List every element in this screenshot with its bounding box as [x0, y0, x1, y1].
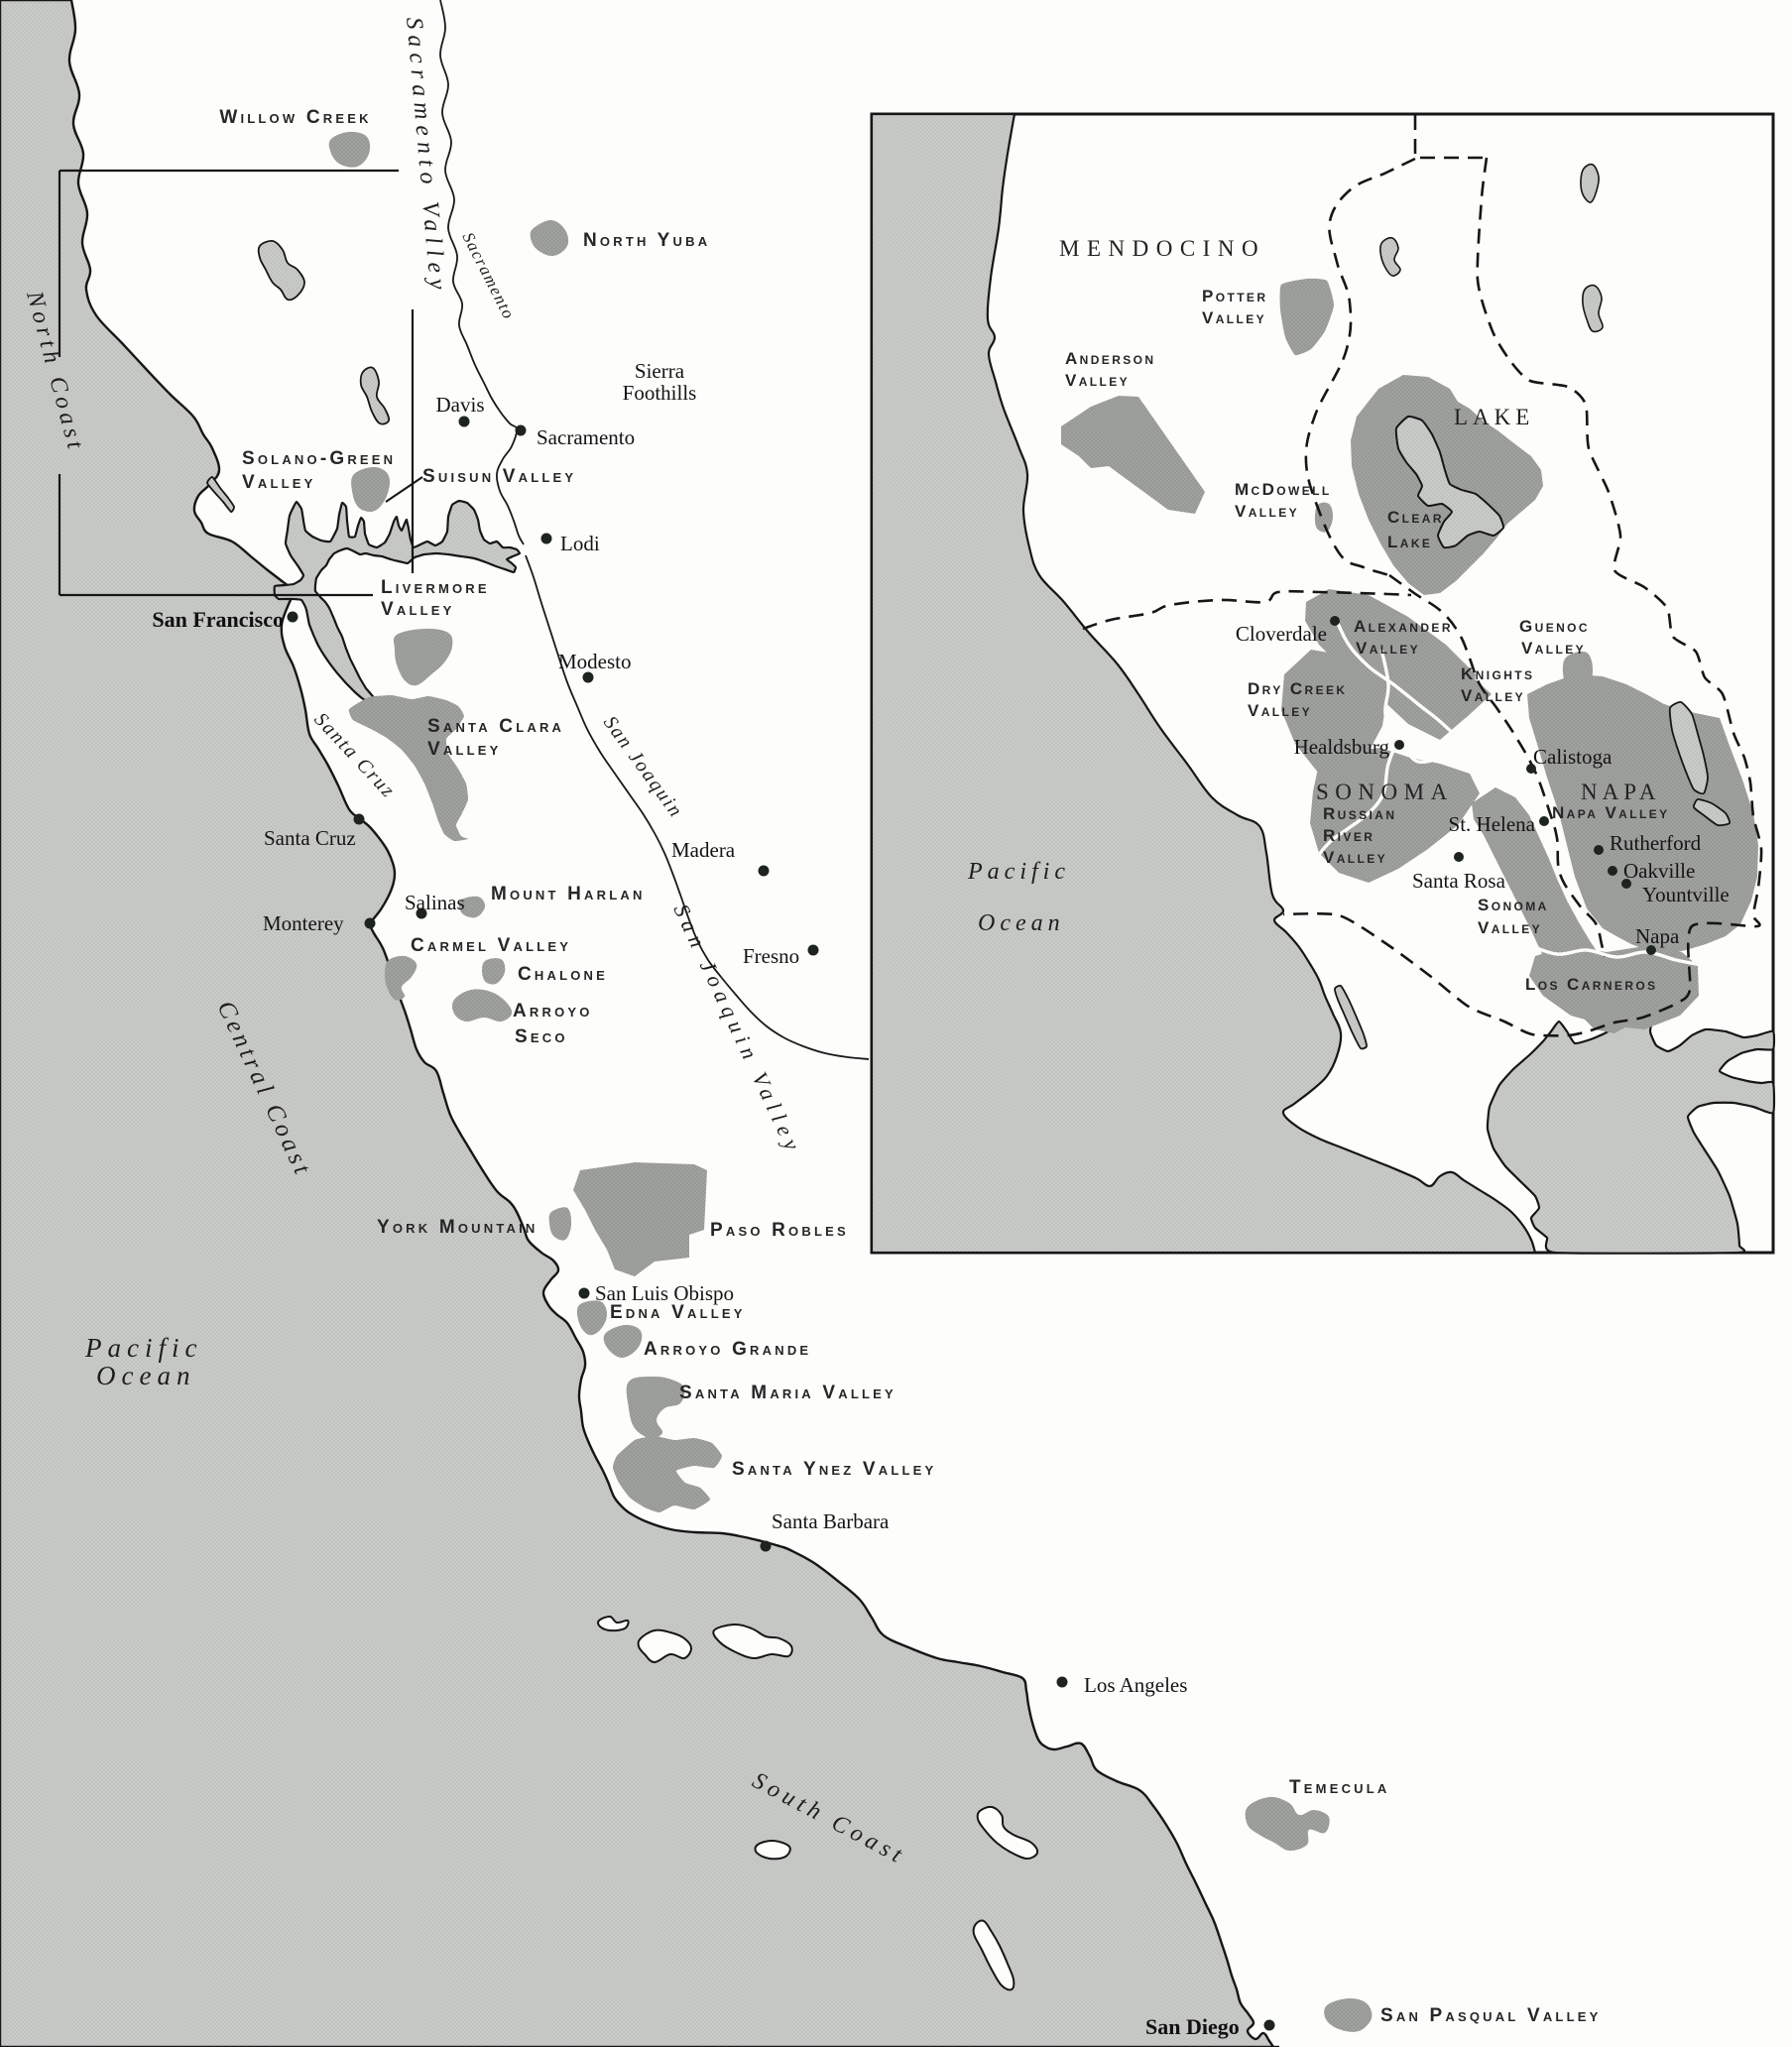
svg-text:Sacramento: Sacramento: [537, 425, 635, 449]
svg-text:Santa Barbara: Santa Barbara: [772, 1509, 890, 1533]
svg-text:Carmel Valley: Carmel Valley: [411, 935, 571, 956]
svg-text:Monterey: Monterey: [263, 911, 344, 935]
svg-text:San Diego: San Diego: [1145, 2014, 1240, 2039]
svg-text:Alexander: Alexander: [1354, 617, 1453, 636]
svg-text:Valley: Valley: [1248, 701, 1312, 720]
svg-text:MENDOCINO: MENDOCINO: [1059, 236, 1265, 261]
svg-text:Valley: Valley: [1202, 308, 1266, 327]
svg-text:Pacific: Pacific: [84, 1333, 202, 1363]
svg-text:Dry Creek: Dry Creek: [1248, 679, 1347, 698]
svg-text:NAPA: NAPA: [1581, 780, 1661, 804]
svg-text:Santa Maria Valley: Santa Maria Valley: [679, 1383, 896, 1403]
svg-text:LAKE: LAKE: [1454, 405, 1534, 429]
svg-text:Pacific: Pacific: [967, 859, 1070, 885]
svg-text:St. Helena: St. Helena: [1449, 812, 1536, 836]
svg-text:Salinas: Salinas: [405, 891, 465, 914]
svg-text:Santa Ynez Valley: Santa Ynez Valley: [732, 1459, 936, 1480]
svg-text:Valley: Valley: [242, 472, 316, 493]
svg-text:San Pasqual Valley: San Pasqual Valley: [1380, 2005, 1601, 2026]
svg-text:Cloverdale: Cloverdale: [1236, 622, 1327, 646]
svg-text:Arroyo: Arroyo: [513, 1001, 593, 1022]
svg-text:Willow Creek: Willow Creek: [219, 107, 371, 128]
svg-text:Russian: Russian: [1323, 804, 1396, 823]
svg-text:Potter: Potter: [1202, 287, 1267, 305]
svg-text:Chalone: Chalone: [518, 964, 608, 985]
svg-text:Suisun Valley: Suisun Valley: [422, 466, 576, 487]
svg-text:River: River: [1323, 826, 1374, 845]
svg-text:Foothills: Foothills: [623, 381, 697, 405]
svg-text:Los Carneros: Los Carneros: [1525, 975, 1658, 994]
svg-text:Solano-Green: Solano-Green: [242, 448, 396, 469]
svg-text:Valley: Valley: [1478, 918, 1542, 937]
svg-text:Madera: Madera: [671, 838, 736, 862]
svg-text:Santa Rosa: Santa Rosa: [1412, 869, 1506, 893]
svg-text:Los Angeles: Los Angeles: [1084, 1673, 1187, 1697]
svg-text:Valley: Valley: [381, 599, 455, 620]
svg-text:Seco: Seco: [515, 1026, 568, 1047]
svg-text:Lodi: Lodi: [560, 532, 600, 555]
svg-text:Livermore: Livermore: [381, 577, 490, 598]
svg-text:Clear: Clear: [1387, 508, 1444, 527]
svg-text:Ocean: Ocean: [978, 910, 1065, 936]
svg-text:McDowell: McDowell: [1235, 480, 1332, 499]
svg-text:Healdsburg: Healdsburg: [1294, 735, 1390, 759]
svg-text:Mount Harlan: Mount Harlan: [491, 884, 646, 904]
svg-text:Napa: Napa: [1635, 924, 1680, 948]
svg-text:Ocean: Ocean: [96, 1361, 195, 1390]
svg-text:Edna Valley: Edna Valley: [610, 1302, 746, 1323]
svg-text:San Francisco: San Francisco: [152, 607, 284, 632]
svg-text:Santa Clara: Santa Clara: [427, 716, 564, 737]
svg-text:Valley: Valley: [1521, 639, 1586, 658]
svg-text:Valley: Valley: [1461, 686, 1525, 705]
svg-text:Valley: Valley: [1323, 848, 1387, 867]
svg-text:Temecula: Temecula: [1289, 1777, 1389, 1798]
svg-text:Valley: Valley: [1235, 502, 1299, 521]
svg-text:North Yuba: North Yuba: [583, 230, 710, 251]
svg-text:Valley: Valley: [427, 739, 502, 760]
svg-text:Lake: Lake: [1387, 533, 1432, 551]
svg-text:Paso Robles: Paso Robles: [710, 1220, 849, 1241]
svg-text:Arroyo Grande: Arroyo Grande: [644, 1339, 811, 1360]
svg-text:Santa Cruz: Santa Cruz: [264, 826, 356, 850]
svg-text:Modesto: Modesto: [558, 650, 632, 673]
svg-text:Valley: Valley: [1065, 371, 1130, 390]
svg-text:Napa Valley: Napa Valley: [1552, 803, 1670, 822]
svg-text:Oakville: Oakville: [1623, 859, 1695, 883]
svg-text:Yountville: Yountville: [1642, 883, 1730, 906]
svg-text:Anderson: Anderson: [1065, 349, 1155, 368]
svg-text:SONOMA: SONOMA: [1316, 780, 1454, 804]
svg-text:Rutherford: Rutherford: [1610, 831, 1702, 855]
svg-text:Calistoga: Calistoga: [1533, 745, 1613, 769]
svg-text:Fresno: Fresno: [743, 944, 799, 968]
svg-text:Knights: Knights: [1461, 664, 1534, 683]
svg-text:Sierra: Sierra: [635, 359, 685, 383]
svg-text:Davis: Davis: [436, 393, 485, 417]
svg-text:Sonoma: Sonoma: [1478, 896, 1549, 914]
svg-text:Valley: Valley: [1356, 639, 1420, 658]
svg-text:Guenoc: Guenoc: [1519, 617, 1590, 636]
svg-text:York Mountain: York Mountain: [377, 1217, 538, 1238]
